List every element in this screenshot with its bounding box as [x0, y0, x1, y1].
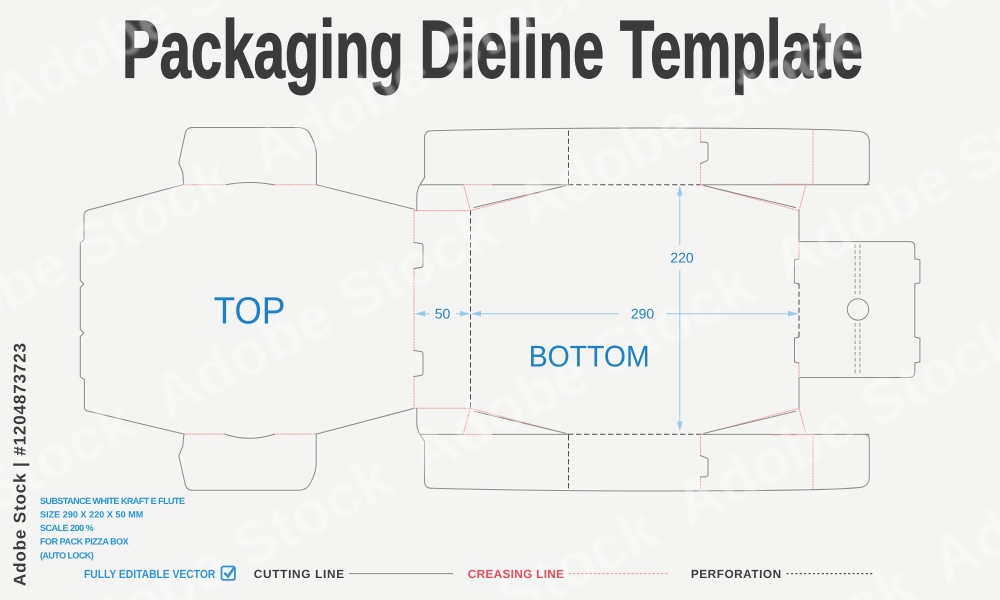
svg-text:FULLY EDITABLE VECTOR: FULLY EDITABLE VECTOR: [84, 567, 216, 581]
svg-text:TOP: TOP: [214, 290, 286, 332]
svg-text:CUTTING LINE: CUTTING LINE: [254, 567, 344, 581]
svg-text:BOTTOM: BOTTOM: [529, 340, 650, 373]
svg-text:(AUTO LOCK): (AUTO LOCK): [40, 551, 94, 561]
svg-text:SCALE 200 %: SCALE 200 %: [40, 523, 94, 533]
svg-text:PERFORATION: PERFORATION: [691, 567, 781, 581]
svg-text:Adobe Stock | #1204873723: Adobe Stock | #1204873723: [11, 343, 30, 586]
svg-text:50: 50: [435, 306, 451, 322]
svg-text:220: 220: [670, 250, 694, 266]
svg-text:FOR PACK PIZZA BOX: FOR PACK PIZZA BOX: [40, 536, 129, 546]
svg-text:CREASING LINE: CREASING LINE: [468, 567, 564, 581]
svg-text:SUBSTANCE WHITE KRAFT E FLUTE: SUBSTANCE WHITE KRAFT E FLUTE: [40, 496, 185, 506]
svg-text:290: 290: [631, 306, 655, 322]
svg-text:SIZE 290 X 220 X 50 MM: SIZE 290 X 220 X 50 MM: [40, 509, 143, 519]
